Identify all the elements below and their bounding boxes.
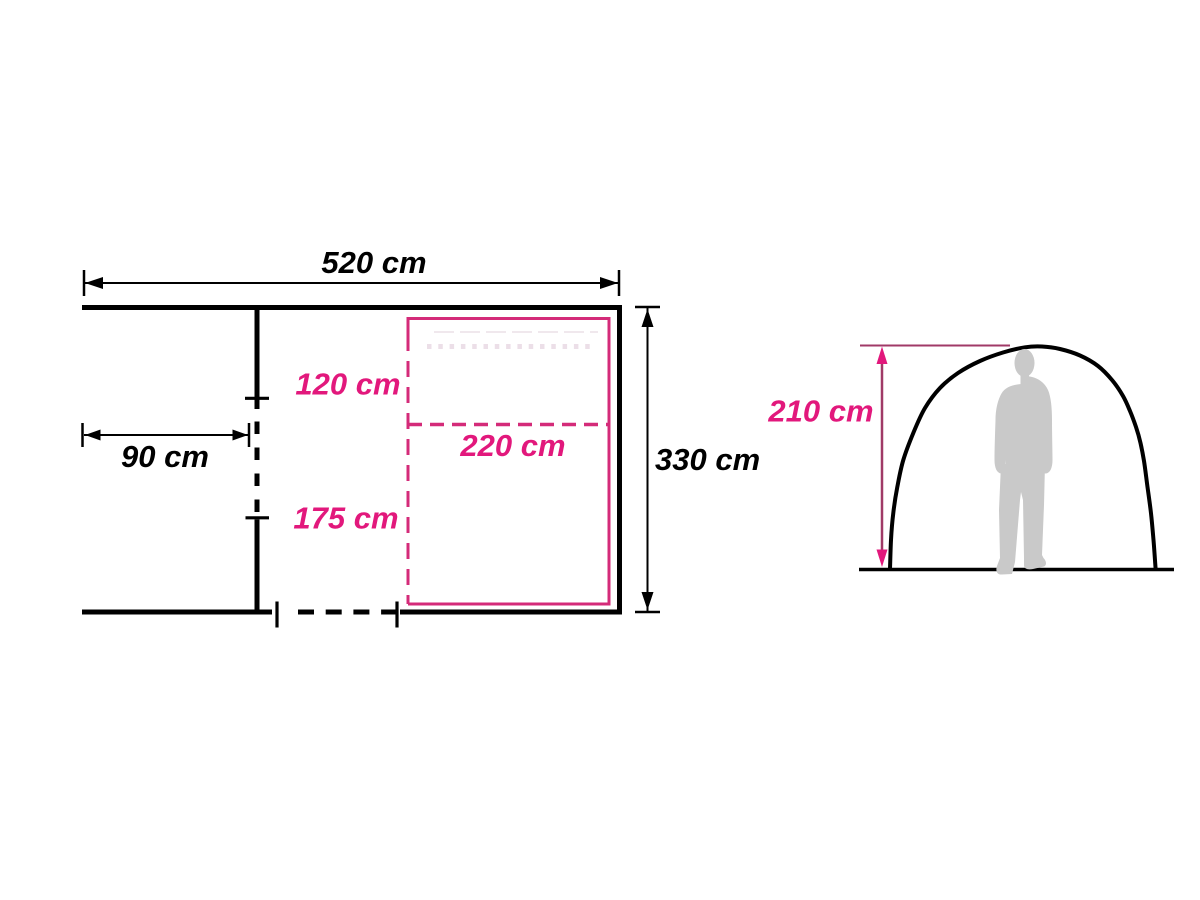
svg-text:330 cm: 330 cm [655,442,760,477]
svg-text:120 cm: 120 cm [295,367,400,402]
svg-text:210 cm: 210 cm [767,394,873,429]
svg-text:520 cm: 520 cm [321,245,426,280]
svg-text:90 cm: 90 cm [121,439,209,474]
svg-text:220 cm: 220 cm [459,428,565,463]
svg-text:175 cm: 175 cm [293,501,398,536]
